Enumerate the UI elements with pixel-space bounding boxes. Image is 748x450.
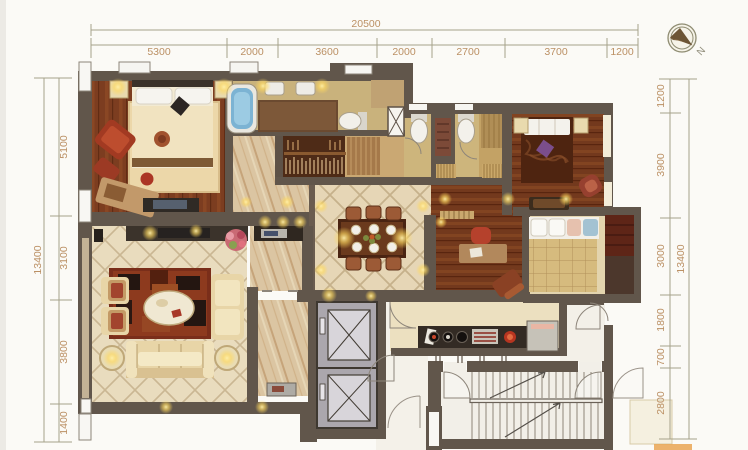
svg-text:2800: 2800 <box>655 391 667 415</box>
svg-text:1400: 1400 <box>58 411 70 435</box>
svg-text:700: 700 <box>655 348 667 366</box>
svg-text:13400: 13400 <box>32 245 44 274</box>
svg-text:1800: 1800 <box>655 308 667 332</box>
svg-text:1200: 1200 <box>610 46 634 58</box>
svg-text:3100: 3100 <box>58 246 70 270</box>
svg-text:1200: 1200 <box>655 84 667 108</box>
svg-text:20500: 20500 <box>351 18 380 30</box>
svg-text:2000: 2000 <box>240 46 264 58</box>
svg-text:2700: 2700 <box>456 46 480 58</box>
svg-text:3700: 3700 <box>544 46 568 58</box>
svg-text:5100: 5100 <box>58 135 70 159</box>
svg-text:13400: 13400 <box>675 244 687 273</box>
svg-text:3900: 3900 <box>655 153 667 177</box>
svg-text:2000: 2000 <box>392 46 416 58</box>
svg-text:3800: 3800 <box>58 340 70 364</box>
svg-text:3000: 3000 <box>655 244 667 268</box>
svg-text:5300: 5300 <box>147 46 171 58</box>
svg-text:3600: 3600 <box>315 46 339 58</box>
